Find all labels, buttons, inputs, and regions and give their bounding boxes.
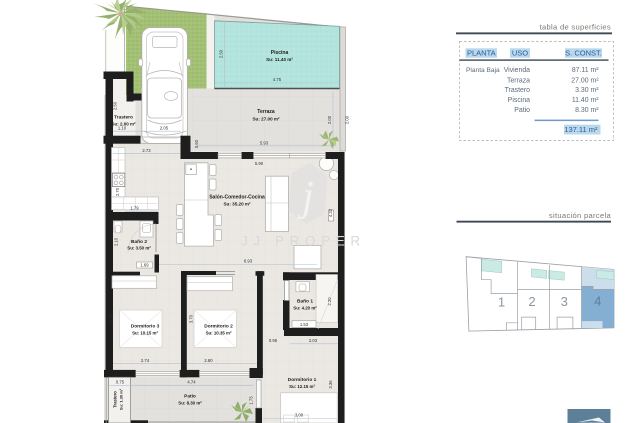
svg-text:27.00 m²: 27.00 m² — [571, 77, 599, 84]
svg-text:Su: 10.35 m²: Su: 10.35 m² — [206, 330, 232, 335]
svg-text:2.00: 2.00 — [344, 115, 349, 124]
svg-text:Baño 1: Baño 1 — [297, 298, 313, 304]
svg-text:3.36: 3.36 — [328, 380, 333, 389]
svg-text:0.95: 0.95 — [269, 338, 278, 343]
svg-text:87.11 m²: 87.11 m² — [572, 67, 599, 74]
svg-text:Piscina: Piscina — [271, 50, 289, 56]
svg-text:1.69: 1.69 — [140, 263, 149, 268]
svg-text:Trastero: Trastero — [113, 391, 118, 408]
svg-text:Su: 27.00 m²: Su: 27.00 m² — [252, 116, 280, 121]
svg-text:2.73: 2.73 — [142, 148, 151, 153]
svg-text:PLANTA: PLANTA — [467, 49, 496, 58]
svg-text:2.03: 2.03 — [309, 338, 318, 343]
svg-text:Trastero: Trastero — [114, 114, 133, 120]
svg-text:Patio: Patio — [514, 107, 530, 114]
svg-text:2: 2 — [528, 294, 535, 309]
svg-text:2.74: 2.74 — [141, 358, 150, 363]
svg-text:4.75: 4.75 — [273, 77, 282, 82]
svg-text:Patio: Patio — [184, 394, 196, 400]
svg-text:1: 1 — [498, 295, 505, 310]
svg-text:1.79: 1.79 — [130, 205, 139, 210]
svg-text:2.00: 2.00 — [327, 115, 332, 124]
svg-text:4: 4 — [594, 294, 601, 309]
svg-text:3.30 m²: 3.30 m² — [575, 87, 599, 94]
svg-text:2.70: 2.70 — [115, 187, 120, 196]
svg-text:Su: 4.20 m²: Su: 4.20 m² — [293, 305, 317, 310]
svg-text:4.74: 4.74 — [187, 380, 196, 385]
svg-text:tabla de superficies: tabla de superficies — [540, 23, 611, 32]
svg-text:0.75: 0.75 — [116, 380, 125, 385]
svg-text:5.90: 5.90 — [255, 161, 264, 166]
svg-text:0.60: 0.60 — [194, 139, 199, 148]
svg-text:2.80: 2.80 — [204, 358, 213, 363]
svg-text:1.73: 1.73 — [249, 396, 254, 405]
svg-text:11.40 m²: 11.40 m² — [572, 97, 599, 104]
svg-text:2.50: 2.50 — [219, 49, 224, 58]
svg-text:Terraza: Terraza — [507, 77, 530, 84]
svg-text:Dormitorio 3: Dormitorio 3 — [131, 323, 160, 329]
svg-text:1.53: 1.53 — [300, 322, 309, 327]
svg-text:Su: 10.15 m²: Su: 10.15 m² — [132, 330, 158, 335]
svg-text:2.10: 2.10 — [114, 237, 119, 246]
svg-text:USO: USO — [512, 49, 528, 58]
svg-text:Piscina: Piscina — [508, 97, 530, 104]
svg-text:Su: 35.20 m²: Su: 35.20 m² — [223, 202, 251, 207]
svg-text:3: 3 — [561, 294, 568, 309]
svg-text:3.00: 3.00 — [295, 412, 304, 417]
svg-text:8.30 m²: 8.30 m² — [575, 107, 599, 114]
svg-text:2.20: 2.20 — [327, 297, 332, 306]
svg-text:Dormitorio 2: Dormitorio 2 — [204, 323, 233, 329]
svg-text:3.70: 3.70 — [109, 314, 114, 323]
svg-text:Vivienda: Vivienda — [504, 67, 530, 74]
svg-text:5.93: 5.93 — [260, 140, 269, 145]
svg-text:Su: 1.30 m²: Su: 1.30 m² — [119, 388, 124, 410]
svg-text:3.70: 3.70 — [189, 314, 194, 323]
svg-text:Planta Baja: Planta Baja — [466, 67, 500, 74]
svg-text:JJ PROPER: JJ PROPER — [241, 234, 366, 249]
svg-text:Trastero: Trastero — [505, 87, 531, 94]
svg-text:situación parcela: situación parcela — [549, 211, 612, 220]
svg-text:6.93: 6.93 — [244, 259, 253, 264]
svg-text:Dormitorio 1: Dormitorio 1 — [288, 377, 317, 383]
svg-text:4.32: 4.32 — [328, 208, 333, 217]
svg-text:137.11 m²: 137.11 m² — [564, 125, 598, 134]
svg-text:1.10: 1.10 — [118, 125, 127, 130]
svg-text:2.05: 2.05 — [160, 125, 169, 130]
svg-text:2.50: 2.50 — [113, 101, 118, 110]
svg-text:Salón-Comedor-Cocina: Salón-Comedor-Cocina — [209, 194, 265, 200]
svg-text:Su: 8.30 m²: Su: 8.30 m² — [178, 401, 202, 406]
svg-text:Baño 2: Baño 2 — [131, 239, 147, 245]
svg-text:S. CONST.: S. CONST. — [565, 49, 602, 58]
svg-text:Su: 12.15 m²: Su: 12.15 m² — [289, 384, 315, 389]
svg-text:Su: 11.40 m²: Su: 11.40 m² — [266, 57, 293, 62]
svg-text:Su: 3.50 m²: Su: 3.50 m² — [127, 246, 151, 251]
svg-text:Terraza: Terraza — [257, 109, 275, 115]
